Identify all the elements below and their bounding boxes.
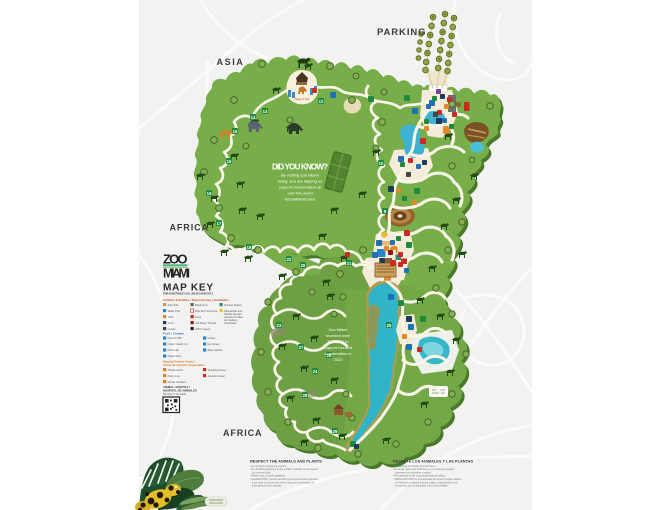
svg-text:14: 14: [251, 115, 256, 120]
svg-text:today, you are helping us: today, you are helping us: [278, 179, 322, 184]
svg-text:ZOO: ZOO: [163, 252, 188, 267]
svg-text:Food / Comida: Food / Comida: [163, 332, 184, 336]
svg-text:Restrooms: Restrooms: [195, 303, 208, 307]
svg-text:Kiosks: Kiosks: [208, 336, 216, 340]
svg-text:Asia Trail: Asia Trail: [168, 303, 179, 307]
svg-text:Pizza Hut: Pizza Hut: [168, 348, 179, 352]
svg-text:12: 12: [319, 99, 324, 104]
svg-text:29: 29: [333, 429, 338, 434]
svg-text:les permita, por su seguridad: les permita, por su seguridad y la de lo…: [395, 485, 448, 488]
svg-text:Zoo Miami: Zoo Miami: [329, 327, 348, 332]
svg-text:18: 18: [247, 245, 252, 250]
svg-text:25: 25: [387, 323, 392, 328]
svg-text:19: 19: [207, 191, 212, 196]
svg-text:Rental Pavilions: Rental Pavilions: [168, 380, 187, 384]
svg-text:Cycles: Cycles: [168, 327, 176, 331]
svg-text:over the world: over the world: [287, 191, 312, 196]
svg-text:Areas de Eventos Especiales: Areas de Eventos Especiales: [163, 363, 205, 367]
svg-text:DID YOU KNOW?: DID YOU KNOW?: [272, 163, 328, 172]
svg-text:Food: Food: [195, 315, 201, 319]
svg-text:28: 28: [303, 393, 308, 398]
svg-text:$376,000 to: $376,000 to: [327, 339, 349, 344]
svg-text:20: 20: [301, 263, 306, 268]
svg-text:Cotton Candy Co.: Cotton Candy Co.: [168, 342, 189, 346]
svg-text:Wings of Asia: Wings of Asia: [295, 98, 310, 101]
svg-text:their safety and the animals.: their safety and the animals.: [252, 485, 282, 488]
svg-text:support focused: support focused: [324, 345, 352, 350]
svg-text:First Aid / Primeros: First Aid / Primeros: [195, 309, 218, 313]
svg-text:Ice Cream: Ice Cream: [208, 342, 220, 346]
svg-text:PARKING: PARKING: [377, 27, 426, 38]
svg-text:24: 24: [313, 369, 318, 374]
svg-text:support conservation all: support conservation all: [279, 185, 321, 190]
svg-text:AFRICA: AFRICA: [170, 223, 209, 233]
svg-text:27: 27: [299, 345, 304, 350]
svg-text:FOR ASSISTANCE CALL 305-251-04: FOR ASSISTANCE CALL 305-251-0400 EXT 2: [163, 292, 214, 296]
svg-text:Nursing Station: Nursing Station: [224, 303, 242, 307]
svg-text:invested over: invested over: [326, 333, 350, 338]
svg-text:Exhibits & Entities / Exposici: Exhibits & Entities / Exposiciones y Ent…: [163, 298, 229, 302]
svg-text:AFRICA: AFRICA: [223, 428, 262, 438]
svg-text:conservation in: conservation in: [325, 351, 352, 356]
svg-text:RESPECT THE ANIMALS AND PLANTS: RESPECT THE ANIMALS AND PLANTS: [250, 459, 322, 464]
svg-text:Private Event: Private Event: [168, 368, 184, 372]
svg-text:17: 17: [217, 221, 222, 226]
svg-text:23: 23: [277, 323, 282, 328]
svg-text:ASIA: ASIA: [217, 57, 245, 67]
svg-text:22: 22: [287, 257, 292, 262]
svg-text:By visiting Zoo Miami: By visiting Zoo Miami: [281, 173, 319, 178]
svg-text:Gift Shop / Tienda: Gift Shop / Tienda: [195, 321, 216, 325]
svg-text:ATM / Cajero: ATM / Cajero: [195, 327, 211, 331]
svg-text:13: 13: [263, 109, 268, 114]
svg-text:Dippin Dots: Dippin Dots: [168, 354, 182, 358]
svg-text:Party Area: Party Area: [168, 374, 181, 378]
svg-text:Not open to the public: Not open to the public: [163, 393, 187, 396]
svg-text:Beer Garden: Beer Garden: [208, 348, 223, 352]
svg-text:Smoking Areas /: Smoking Areas /: [208, 368, 227, 372]
svg-text:10: 10: [379, 161, 384, 166]
svg-text:Tram: Tram: [168, 321, 174, 325]
svg-text:RESPETE LOS ANIMALES Y LAS PLA: RESPETE LOS ANIMALES Y LAS PLANTAS: [393, 459, 473, 464]
svg-text:Train: Train: [168, 315, 174, 319]
svg-text:2022: 2022: [334, 357, 344, 362]
svg-text:cochecitos: cochecitos: [224, 321, 237, 325]
svg-text:#ZooMiamiCares: #ZooMiamiCares: [285, 197, 315, 202]
svg-text:Nourish 305: Nourish 305: [168, 336, 183, 340]
svg-text:Water Play: Water Play: [168, 309, 181, 313]
svg-text:MIAMI: MIAMI: [163, 266, 190, 280]
svg-text:Area de Fumar: Area de Fumar: [208, 374, 225, 378]
svg-text:16: 16: [233, 129, 238, 134]
svg-text:15: 15: [227, 159, 232, 164]
svg-text:21: 21: [347, 261, 352, 266]
